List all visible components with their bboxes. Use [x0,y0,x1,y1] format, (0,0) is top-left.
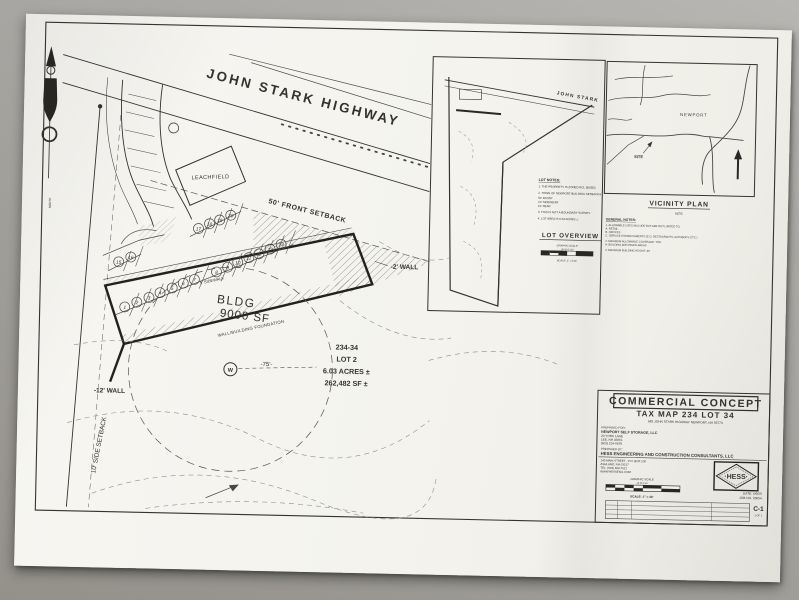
vicinity-north-arrow-icon [734,149,743,179]
hess-logo: ·HESS· [714,462,759,491]
lot-info: 234-34 LOT 2 6.03 ACRES ± 262,482 SF ± [323,342,371,388]
hess-logo-text: ·HESS· [724,474,748,482]
vicinity-town-label: NEWPORT [680,112,708,118]
title-block: COMMERCIAL CONCEPT TAX MAP 234 LOT 34 68… [595,390,770,526]
svg-text:16: 16 [128,255,134,261]
vicinity-title: VICINITY PLAN [649,200,709,208]
svg-text:6.03 ACRES ±: 6.03 ACRES ± [323,366,370,376]
svg-text:5: 5 [171,286,174,292]
svg-text:12: 12 [256,252,262,258]
svg-text:17: 17 [196,226,202,232]
general-notes-title: GENERAL NOTES: [606,217,636,222]
svg-text:3. MAXIMUM BUILDING HEIGHT: 4: 3. MAXIMUM BUILDING HEIGHT: 40' [605,248,651,253]
svg-text:8: 8 [215,270,218,276]
svg-text:19: 19 [217,218,223,224]
leachfield-label: LEACHFIELD [191,174,229,181]
scale-text: SCALE: 1" = 40' [630,495,654,500]
general-notes: 1. ALLOWABLE USES INCLUDE BUT ARE NOT LI… [605,223,698,254]
well-radius-label: -75'- [261,362,273,368]
svg-text:262,482 SF ±: 262,482 SF ± [324,378,367,388]
svg-text:3: 3 [148,295,151,301]
unit-marker: 16 [126,246,143,266]
lot-notes: 1. THE PROPERTY IS ZONED RCL (B1/B2). 2.… [538,184,603,221]
property-boundary [66,104,121,508]
front-setback-line [149,180,435,262]
north-arrow-label: NORTH [48,198,52,209]
plan-sheet: JOHN STARK HIGHWAY 10' S [14,14,792,583]
svg-text:2: 2 [134,300,138,306]
svg-text:11: 11 [246,256,251,262]
svg-text:15: 15 [116,260,122,266]
scale-bar [606,484,680,492]
svg-text:4: 4 [159,291,162,297]
overview-scale-text: SCALE: 1" = 100' [557,258,578,262]
highway-label: JOHN STARK HIGHWAY [205,66,401,129]
svg-text:6: 6 [182,281,185,287]
lot-overview-inset: JOHN STARK LOT NOTES: 1. THE PROPERTY IS… [428,57,606,315]
lot-notes-title: LOT NOTES: [539,178,561,182]
svg-text:18: 18 [207,222,213,228]
photo-background: JOHN STARK HIGHWAY 10' S [0,0,799,600]
svg-text:C. SERVICE ESTABLISHMENTS (E.: C. SERVICE ESTABLISHMENTS (E.G. RESTAURA… [605,233,697,239]
scale-numbers: 40 20 0 40 [637,483,649,485]
sheet-number: C-1 [753,506,764,513]
sheet-address: 682 JOHN STARK HIGHWAY NEWPORT, NH 03773 [648,419,723,425]
site-plan-drawing: JOHN STARK HIGHWAY 10' S [14,14,792,583]
side-setback-label: 10' SIDE SETBACK [90,416,108,475]
overview-scale-bar [541,251,593,257]
svg-text:13: 13 [267,247,273,253]
svg-text:1. THE PROPERTY IS ZONED RCL: 1. THE PROPERTY IS ZONED RCL (B1/B2). [538,184,596,189]
svg-text:234-34: 234-34 [336,343,359,352]
hatch-zones [102,207,432,350]
unit-marker: 7 [189,265,208,288]
vicinity-site-label: SITE [634,154,643,159]
svg-text:1: 1 [123,305,126,311]
driveway [104,77,195,227]
overview-scale-label: GRAPHIC SCALE [557,243,578,247]
flow-arrow [206,484,239,499]
unit-marker: 20 [226,203,243,224]
well-label: W [228,368,234,374]
wall-right-label: -2' WALL [391,264,419,272]
svg-text:LOT 2: LOT 2 [336,355,357,364]
manhole-symbol [169,123,179,133]
svg-text:10: 10 [235,260,241,266]
retaining-wall [110,344,124,382]
svg-text:9: 9 [226,265,229,271]
vicinity-nts: NTS [675,212,683,216]
svg-text:3. THIS IS NOT A BOUNDARY SUR: 3. THIS IS NOT A BOUNDARY SURVEY. [538,210,591,215]
prepared-by-address: 140 MAIN STREET - P.O. BOX 100 ASHLAND, … [600,458,646,474]
prepared-for-block: NEWPORT SELF STORAGE, LLC 20 YORK LANE L… [601,430,658,447]
svg-text:WWW.HESSENG.COM: WWW.HESSENG.COM [600,469,631,474]
vicinity-inset: NEWPORT SITE VICINITY PLAN NTS GENERAL N… [603,61,757,255]
svg-text:20: 20 [227,213,234,219]
svg-text:10' REAR: 10' REAR [538,204,551,208]
job-number: JOB NO. 25054 [739,496,762,500]
sheet-of: 1 OF 1 [754,513,763,517]
svg-text:14: 14 [278,242,284,248]
wall-left-label: -12' WALL [94,387,125,395]
svg-text:7: 7 [193,277,196,283]
revision-table [605,500,749,521]
lot-overview-title: LOT OVERVIEW [542,232,599,240]
scale-label: GRAPHIC SCALE [630,477,654,482]
overview-road-label: JOHN STARK [556,90,599,104]
svg-text:4. LOT AREA IS 6.03 ACRES ±.: 4. LOT AREA IS 6.03 ACRES ±. [538,216,579,221]
svg-text:(603) 234-5678: (603) 234-5678 [601,441,623,445]
